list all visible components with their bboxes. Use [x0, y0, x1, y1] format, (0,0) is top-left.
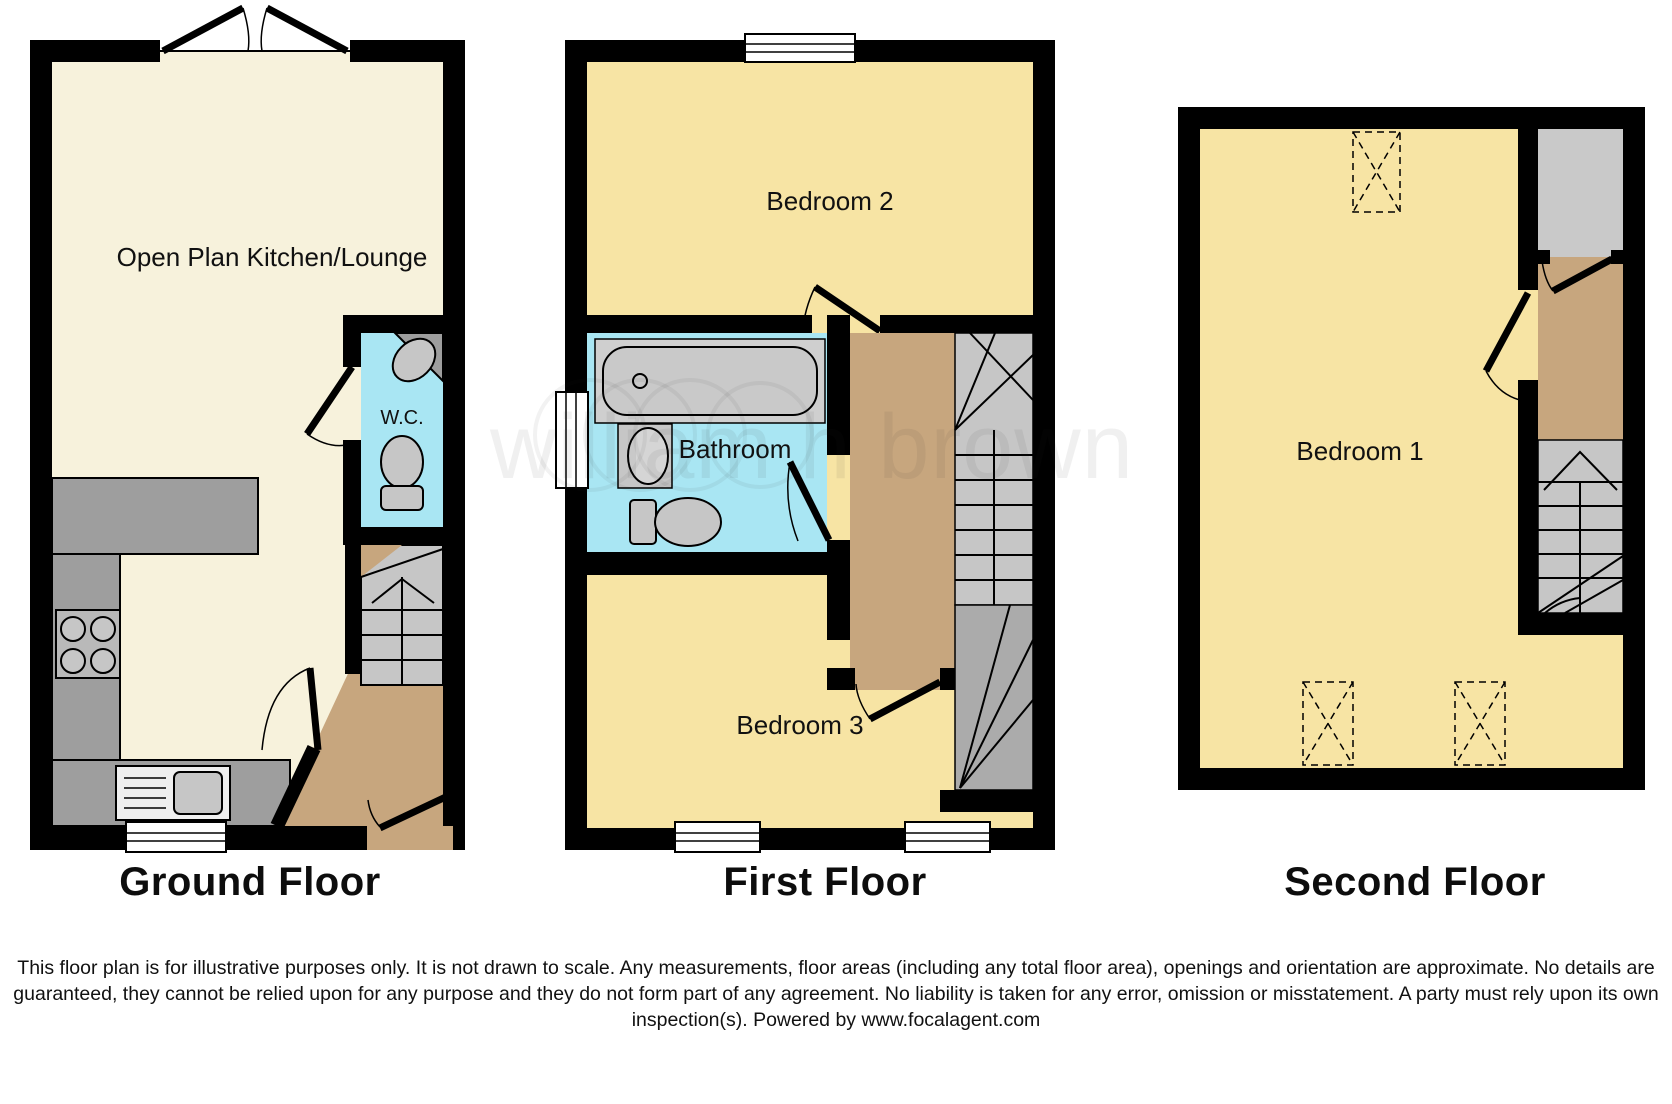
first-landing-floor	[850, 333, 955, 668]
label-bedroom3: Bedroom 3	[736, 710, 863, 740]
first-floor-label: First Floor	[560, 860, 1090, 905]
bath-icon	[603, 347, 817, 415]
disclaimer-text: This floor plan is for illustrative purp…	[0, 956, 1672, 1034]
label-bedroom2: Bedroom 2	[766, 186, 893, 216]
bathroom-cistern	[630, 500, 656, 544]
second-stairs	[1538, 440, 1623, 613]
label-bedroom1: Bedroom 1	[1296, 436, 1423, 466]
second-cupboard	[1538, 129, 1623, 257]
bathroom-toilet-icon	[655, 498, 721, 546]
bathroom-window	[556, 392, 588, 488]
ground-stairs	[345, 545, 443, 685]
bedroom2-wall	[565, 315, 1033, 333]
label-wc: W.C.	[380, 407, 423, 429]
label-bathroom: Bathroom	[679, 434, 792, 464]
bathroom-basin-icon	[628, 428, 668, 484]
second-landing-floor	[1538, 257, 1623, 440]
ground-floor-label: Ground Floor	[0, 860, 500, 905]
label-open-plan-kitchen-lounge: Open Plan Kitchen/Lounge	[117, 242, 428, 272]
first-stairs	[955, 333, 1033, 790]
second-floor-label: Second Floor	[1160, 860, 1670, 905]
hob-icon	[56, 610, 120, 678]
bedroom2-window	[745, 34, 855, 62]
wc-cistern	[381, 486, 423, 510]
floorplan-page: Open Plan Kitchen/Lounge W.C.	[0, 0, 1672, 1104]
kitchen-sink-icon	[116, 766, 230, 820]
floorplan-ground-floor: Open Plan Kitchen/Lounge W.C.	[0, 0, 500, 860]
french-doors	[160, 8, 350, 51]
kitchen-window	[126, 822, 226, 852]
floorplan-first-floor: Bedroom 2 Bathroom Bedroom 3	[540, 0, 1070, 860]
wc-toilet-icon	[381, 436, 423, 488]
floorplan-second-floor: Bedroom 1	[1150, 90, 1672, 800]
